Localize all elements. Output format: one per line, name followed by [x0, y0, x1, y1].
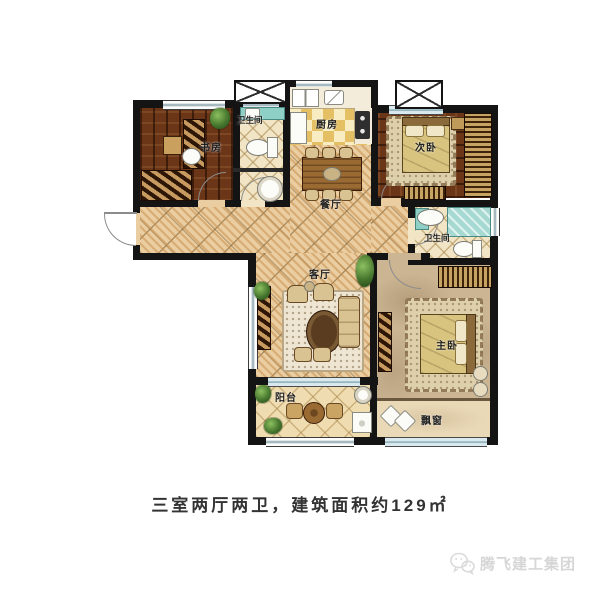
study-door-gap: [198, 200, 225, 207]
bath2-window: [490, 208, 500, 236]
dining-centerpiece: [323, 167, 341, 181]
hallway-floor: [140, 207, 290, 253]
master-label: 主卧: [436, 337, 458, 352]
living-armchair: [313, 283, 334, 301]
balcony-table: [303, 402, 325, 424]
bedroom2-tv-bench: [404, 186, 446, 200]
bay-window-label: 飘窗: [421, 412, 443, 427]
balcony-slider-door: [268, 377, 360, 387]
master-door-gap: [388, 253, 421, 260]
living-ottoman: [294, 347, 312, 362]
balcony-chair: [286, 403, 303, 419]
bath2-sink: [417, 209, 444, 226]
bath1-basin: [257, 176, 283, 202]
study-desk-chair: [182, 148, 201, 165]
caption-text: 三室两厅两卫，建筑面积约129㎡: [0, 491, 600, 516]
kitchen-cabinet-left: [290, 112, 307, 144]
balcony-basin: [354, 386, 372, 404]
kitchen-cutting-board: [324, 90, 344, 105]
balcony-washing-machine: [352, 412, 372, 433]
ac-platform-icon-right: [395, 80, 443, 109]
master-stool: [473, 366, 488, 381]
bay-window-sill: [377, 398, 490, 401]
wall-hall-bottom: [133, 253, 255, 260]
bath1-partition: [233, 168, 283, 172]
kitchen-stove: [355, 111, 370, 139]
study-wall-cabinet: [163, 136, 182, 155]
watermark-text: 腾飞建工集团: [480, 553, 576, 574]
wechat-logo-icon: [449, 551, 475, 575]
ac-platform-icon-left: [234, 80, 287, 104]
wall-bath2-bottom: [408, 258, 498, 265]
study-daybed: [141, 170, 192, 201]
dining-label: 餐厅: [320, 196, 342, 211]
bath2-toilet-tank: [472, 240, 482, 258]
master-wardrobe: [438, 266, 492, 288]
kitchen-label: 厨房: [316, 116, 338, 131]
bath1-toilet-tank: [267, 137, 278, 158]
master-tv-stand: [378, 312, 392, 372]
bath1-label: 卫生间: [237, 114, 263, 126]
balcony-railing-window: [266, 437, 354, 447]
bath1-door-gap: [241, 200, 265, 207]
watermark: 腾飞建工集团: [449, 551, 576, 575]
wall-kitchen-bedroom2: [371, 80, 378, 198]
balcony-label: 阳台: [275, 389, 297, 404]
bay-window-band: [385, 437, 487, 447]
master-stool: [473, 382, 488, 397]
bedroom2-pillow: [426, 125, 445, 137]
living-ottoman: [313, 347, 331, 362]
bedroom2-door-gap: [381, 198, 401, 206]
bedroom2-nightstand: [451, 117, 465, 130]
bedroom2-wardrobe: [464, 113, 492, 197]
dining-chair: [305, 147, 319, 159]
dining-ext-floor: [371, 205, 408, 253]
bedroom2-label: 次卧: [415, 139, 437, 154]
wall-bath2-top: [402, 200, 490, 207]
balcony-chair: [326, 403, 343, 419]
master-headboard: [466, 314, 476, 374]
bath2-shower: [447, 207, 491, 237]
study-label: 书房: [200, 139, 222, 154]
kitchen-double-sink: [292, 89, 319, 107]
dining-chair: [322, 147, 336, 159]
dining-chair: [339, 147, 353, 159]
living-label: 客厅: [309, 266, 331, 281]
living-side-table: [304, 281, 315, 292]
bath2-label: 卫生间: [424, 232, 450, 244]
dining-chair: [305, 189, 319, 201]
floorplan-canvas: 书房 卫生间 厨房 餐厅 次卧 卫生间 客厅: [0, 0, 600, 600]
bedroom2-pillow: [405, 125, 424, 137]
bath2-door-gap: [408, 218, 415, 244]
living-sofa: [338, 296, 360, 348]
entry-door-arc: [104, 214, 136, 246]
